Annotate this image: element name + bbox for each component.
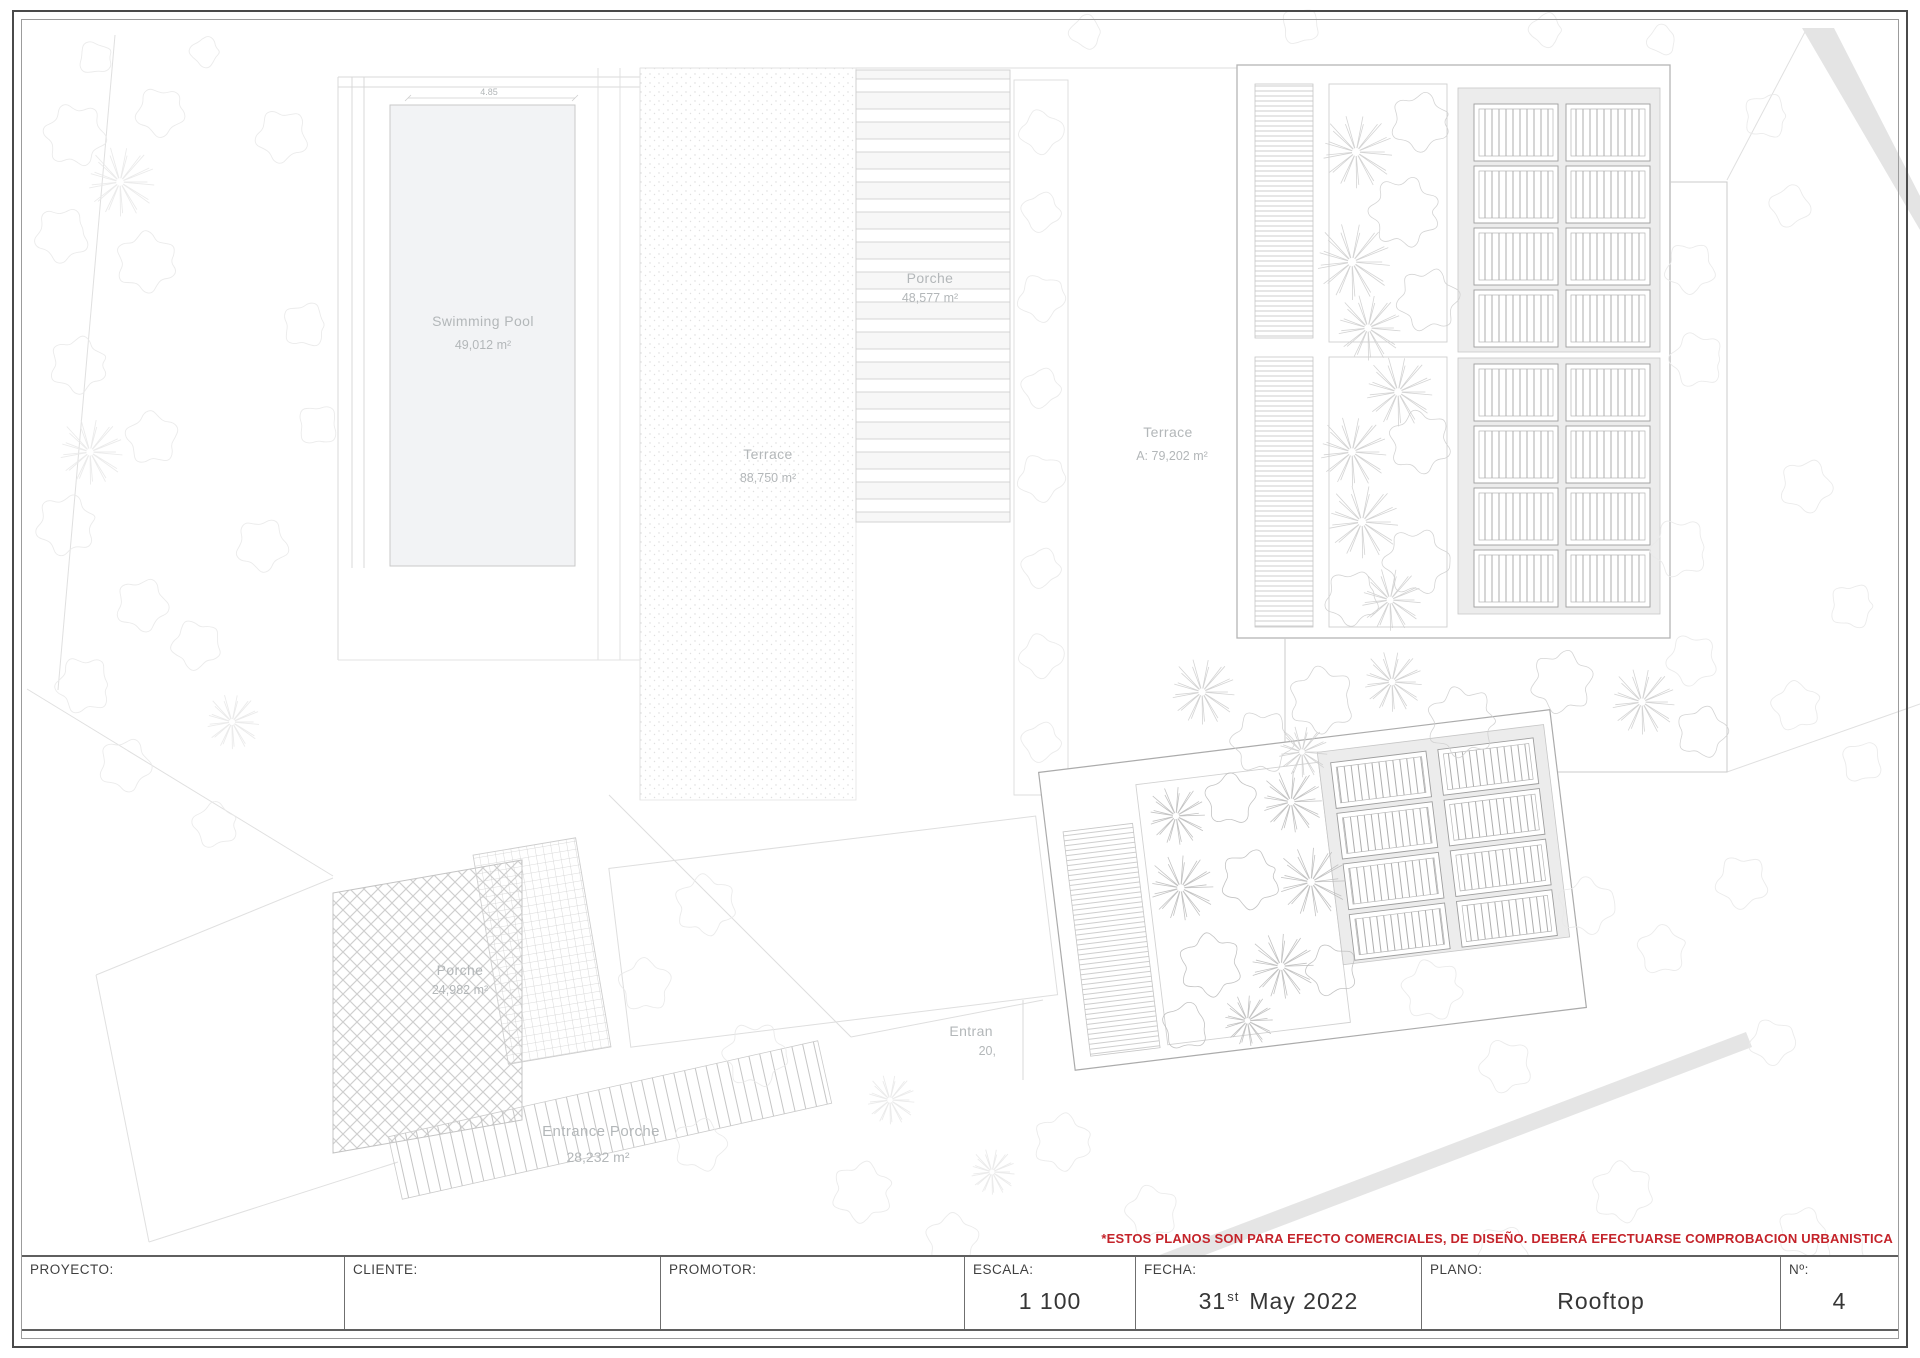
fecha-day: 31 (1199, 1288, 1227, 1315)
site-plan: Swimming Pool 49,012 m² 4.85 Porche 48,5… (0, 0, 1920, 1358)
tree-icon (171, 621, 221, 670)
tree-icon (1664, 245, 1715, 294)
swimming-pool-label: Swimming Pool (432, 313, 534, 329)
roof-garden-lower (1039, 710, 1587, 1071)
tree-icon (1781, 460, 1833, 513)
escala-label: ESCALA: (973, 1262, 1127, 1277)
lower-deck-outline (609, 816, 1058, 1047)
tree-icon (117, 579, 169, 632)
deck-hatch-strip (1255, 357, 1313, 627)
swimming-pool-basin (390, 105, 575, 566)
tree-icon (1021, 192, 1062, 232)
tree-icon (1291, 666, 1352, 734)
titleblock-promotor: PROMOTOR: (661, 1257, 965, 1329)
tree-icon (833, 1161, 892, 1223)
tree-icon (868, 1076, 914, 1125)
tree-icon (80, 42, 111, 72)
disclaimer-note: *ESTOS PLANOS SON PARA EFECTO COMERCIALE… (1101, 1231, 1893, 1246)
tree-icon (1365, 652, 1422, 711)
fecha-label: FECHA: (1144, 1262, 1413, 1277)
tree-icon (1173, 660, 1235, 725)
tree-icon (1746, 94, 1786, 137)
promotor-value (669, 1277, 956, 1325)
tree-icon (55, 659, 108, 713)
titleblock-proyecto: PROYECTO: (22, 1257, 345, 1329)
drawing-sheet: Swimming Pool 49,012 m² 4.85 Porche 48,5… (0, 0, 1920, 1358)
title-block: PROYECTO: CLIENTE: PROMOTOR: ESCALA: 1 1… (22, 1255, 1898, 1331)
solar-panel (1474, 228, 1558, 285)
solar-panel (1566, 364, 1650, 421)
fecha-ordinal: st (1227, 1289, 1239, 1304)
solar-panel (1474, 488, 1558, 545)
titleblock-escala: ESCALA: 1 100 (965, 1257, 1136, 1329)
cliente-label: CLIENTE: (353, 1262, 652, 1277)
solar-panel (1566, 228, 1650, 285)
tree-icon (36, 495, 95, 556)
entrance-partial-label: Entran (949, 1023, 993, 1039)
tree-icon (61, 420, 123, 485)
tree-icon (1479, 1040, 1531, 1092)
terrace-main-area: 88,750 m² (740, 471, 796, 485)
solar-panel (1566, 488, 1650, 545)
cliente-value (353, 1277, 652, 1325)
tree-icon (1021, 722, 1062, 762)
tree-icon (1679, 706, 1729, 757)
tree-icon (1531, 650, 1593, 713)
tree-icon (1669, 333, 1720, 386)
fecha-value: 31stMay 2022 (1144, 1277, 1413, 1325)
porche-top-area: 48,577 m² (902, 291, 958, 305)
entrance-partial-area: 20, (979, 1044, 996, 1058)
tree-icon (1843, 743, 1881, 781)
tree-icon (118, 231, 176, 293)
proyecto-label: PROYECTO: (30, 1262, 336, 1277)
tree-icon (100, 739, 152, 792)
solar-panel (1566, 426, 1650, 483)
solar-panel (1566, 104, 1650, 161)
fecha-rest: May 2022 (1249, 1288, 1358, 1315)
roof-garden-top-right (1237, 65, 1727, 772)
tree-icon (1771, 680, 1820, 729)
planter-strip-center (1014, 80, 1068, 795)
deck-hatch-strip (1255, 84, 1313, 338)
tree-icon (35, 209, 88, 263)
tree-icon (1666, 636, 1716, 686)
terrace-main-label: Terrace (743, 446, 792, 462)
terrace-main-area (640, 68, 856, 800)
tree-icon (1593, 1161, 1653, 1223)
tree-icon (208, 695, 259, 749)
titleblock-fecha: FECHA: 31stMay 2022 (1136, 1257, 1422, 1329)
tree-icon (1613, 670, 1675, 735)
tree-icon (135, 89, 185, 137)
tree-icon (1749, 1020, 1796, 1065)
titleblock-plano: PLANO: Rooftop (1422, 1257, 1781, 1329)
porche-lower-label: Porche (437, 962, 484, 978)
tree-icon (1832, 585, 1873, 628)
tree-icon (236, 520, 288, 572)
proyecto-value (30, 1277, 336, 1325)
tree-icon (972, 1150, 1015, 1195)
promotor-label: PROMOTOR: (669, 1262, 956, 1277)
tree-icon (1637, 925, 1685, 973)
tree-icon (89, 148, 154, 217)
tree-icon (1646, 24, 1674, 55)
solar-panel (1474, 104, 1558, 161)
tree-icon (1715, 858, 1767, 909)
plano-label: PLANO: (1430, 1262, 1772, 1277)
titleblock-numero: Nº: 4 (1781, 1257, 1898, 1329)
tree-icon (676, 874, 736, 936)
tree-icon (51, 336, 105, 394)
escala-value: 1 100 (973, 1277, 1127, 1325)
entrance-porche-area: 28,232 m² (566, 1149, 629, 1165)
numero-label: Nº: (1789, 1262, 1890, 1277)
solar-panel (1566, 550, 1650, 607)
tree-icon (192, 802, 236, 848)
terrace-right-area: A: 79,202 m² (1136, 449, 1208, 463)
tree-icon (1283, 10, 1318, 43)
swimming-pool-block (338, 68, 640, 800)
numero-value: 4 (1789, 1277, 1890, 1325)
tree-icon (255, 112, 307, 164)
solar-panel (1566, 290, 1650, 347)
tree-icon (1125, 1185, 1176, 1237)
tree-icon (300, 407, 336, 443)
porche-top-label: Porche (907, 270, 954, 286)
plano-value: Rooftop (1430, 1277, 1772, 1325)
titleblock-cliente: CLIENTE: (345, 1257, 661, 1329)
porche-lower-area: 24,982 m² (432, 983, 488, 997)
tree-icon (1017, 276, 1065, 323)
pool-dimension-label: 4.85 (480, 87, 498, 97)
tree-icon (1068, 14, 1100, 49)
solar-panel (1566, 166, 1650, 223)
tree-icon (1019, 110, 1065, 155)
solar-panel (1474, 166, 1558, 223)
entrance-porche-label: Entrance Porche (542, 1123, 660, 1140)
tree-icon (1528, 13, 1561, 48)
tree-icon (618, 958, 671, 1009)
tree-icon (1036, 1113, 1090, 1171)
swimming-pool-area: 49,012 m² (455, 338, 511, 352)
tree-icon (125, 411, 178, 462)
tree-icon (1021, 368, 1062, 408)
solar-panel (1474, 426, 1558, 483)
solar-panel (1474, 290, 1558, 347)
tree-icon (1019, 634, 1065, 679)
solar-panel (1474, 550, 1558, 607)
tree-icon (285, 303, 324, 346)
tree-icon (1021, 548, 1062, 588)
tree-icon (189, 37, 219, 68)
tree-icon (1017, 456, 1065, 503)
terrace-right-label: Terrace (1143, 424, 1192, 440)
solar-panel (1474, 364, 1558, 421)
tree-icon (1769, 185, 1811, 227)
site-road-band-top-right (1802, 28, 1920, 230)
